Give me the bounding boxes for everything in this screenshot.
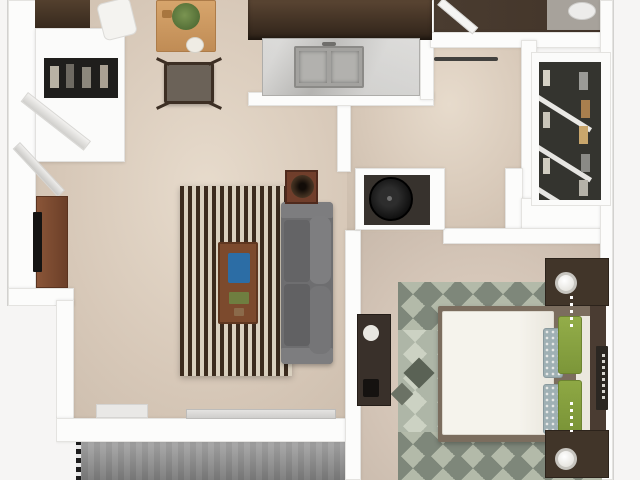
shelf-item [82,67,91,88]
outside-right [613,0,640,480]
lamp-crystals-top [570,296,573,330]
wall-art [596,346,608,410]
hanging-clothes [579,126,588,144]
book-blue [228,253,250,283]
decor-green [229,292,249,304]
bedroom-north-wall [443,228,612,244]
nightstand-bottom [545,430,609,478]
shelf-item [50,66,59,88]
sofa-back-cushion [309,286,331,354]
sofa-back-cushion [309,216,331,284]
decor-small [234,308,244,316]
hanging-clothes [579,72,588,90]
sofa-seat-cushion [284,284,310,346]
coffee-table [218,242,258,324]
living-room-south-wall [56,418,348,442]
sofa-seat-cushion [284,220,310,282]
kitchen-cabinets [248,0,432,40]
sink-basin-right [331,51,359,83]
wall-art-detail [602,354,605,402]
shelf-item [100,65,108,88]
toilet [568,2,596,20]
upper-cabinet [35,0,90,28]
table-vase [186,37,204,53]
shelf-item [66,64,74,88]
desk-plate [363,325,379,341]
desk-decor [363,379,379,397]
floor-plan-render [0,0,640,480]
table-decor [162,10,172,18]
lamp-crystals-bottom [570,402,573,432]
washer-knob [387,196,392,201]
balcony-floor [76,440,346,480]
sink-faucet [322,42,336,46]
hanging-clothes [543,112,550,128]
potted-plant [291,175,314,198]
walk-in-closet-interior [539,62,601,200]
side-table [285,170,318,204]
sofa [281,202,333,364]
hanging-clothes [579,180,588,196]
bed-duvet [442,311,554,435]
kitchen-sink [294,46,364,88]
hanging-clothes [581,100,590,118]
sliding-glass-door [186,409,336,419]
tv [33,212,42,272]
outside-bottom-left [0,306,56,480]
table-plant [172,3,200,30]
bedroom-desk [357,314,391,406]
hanging-clothes [543,70,550,86]
crystal-lamp-top [555,272,577,294]
dining-chair [164,62,214,104]
entry-wardrobe-interior [44,58,118,98]
hanging-clothes [543,158,550,174]
balcony-railing [76,440,81,480]
hall-threshold [434,57,498,61]
window-sill-corner [96,404,148,418]
sink-basin-left [299,51,327,83]
utility-closet [355,168,445,230]
hanging-clothes [581,154,590,172]
crystal-lamp-bottom [555,448,577,470]
outer-wall-left-lower [56,300,74,422]
